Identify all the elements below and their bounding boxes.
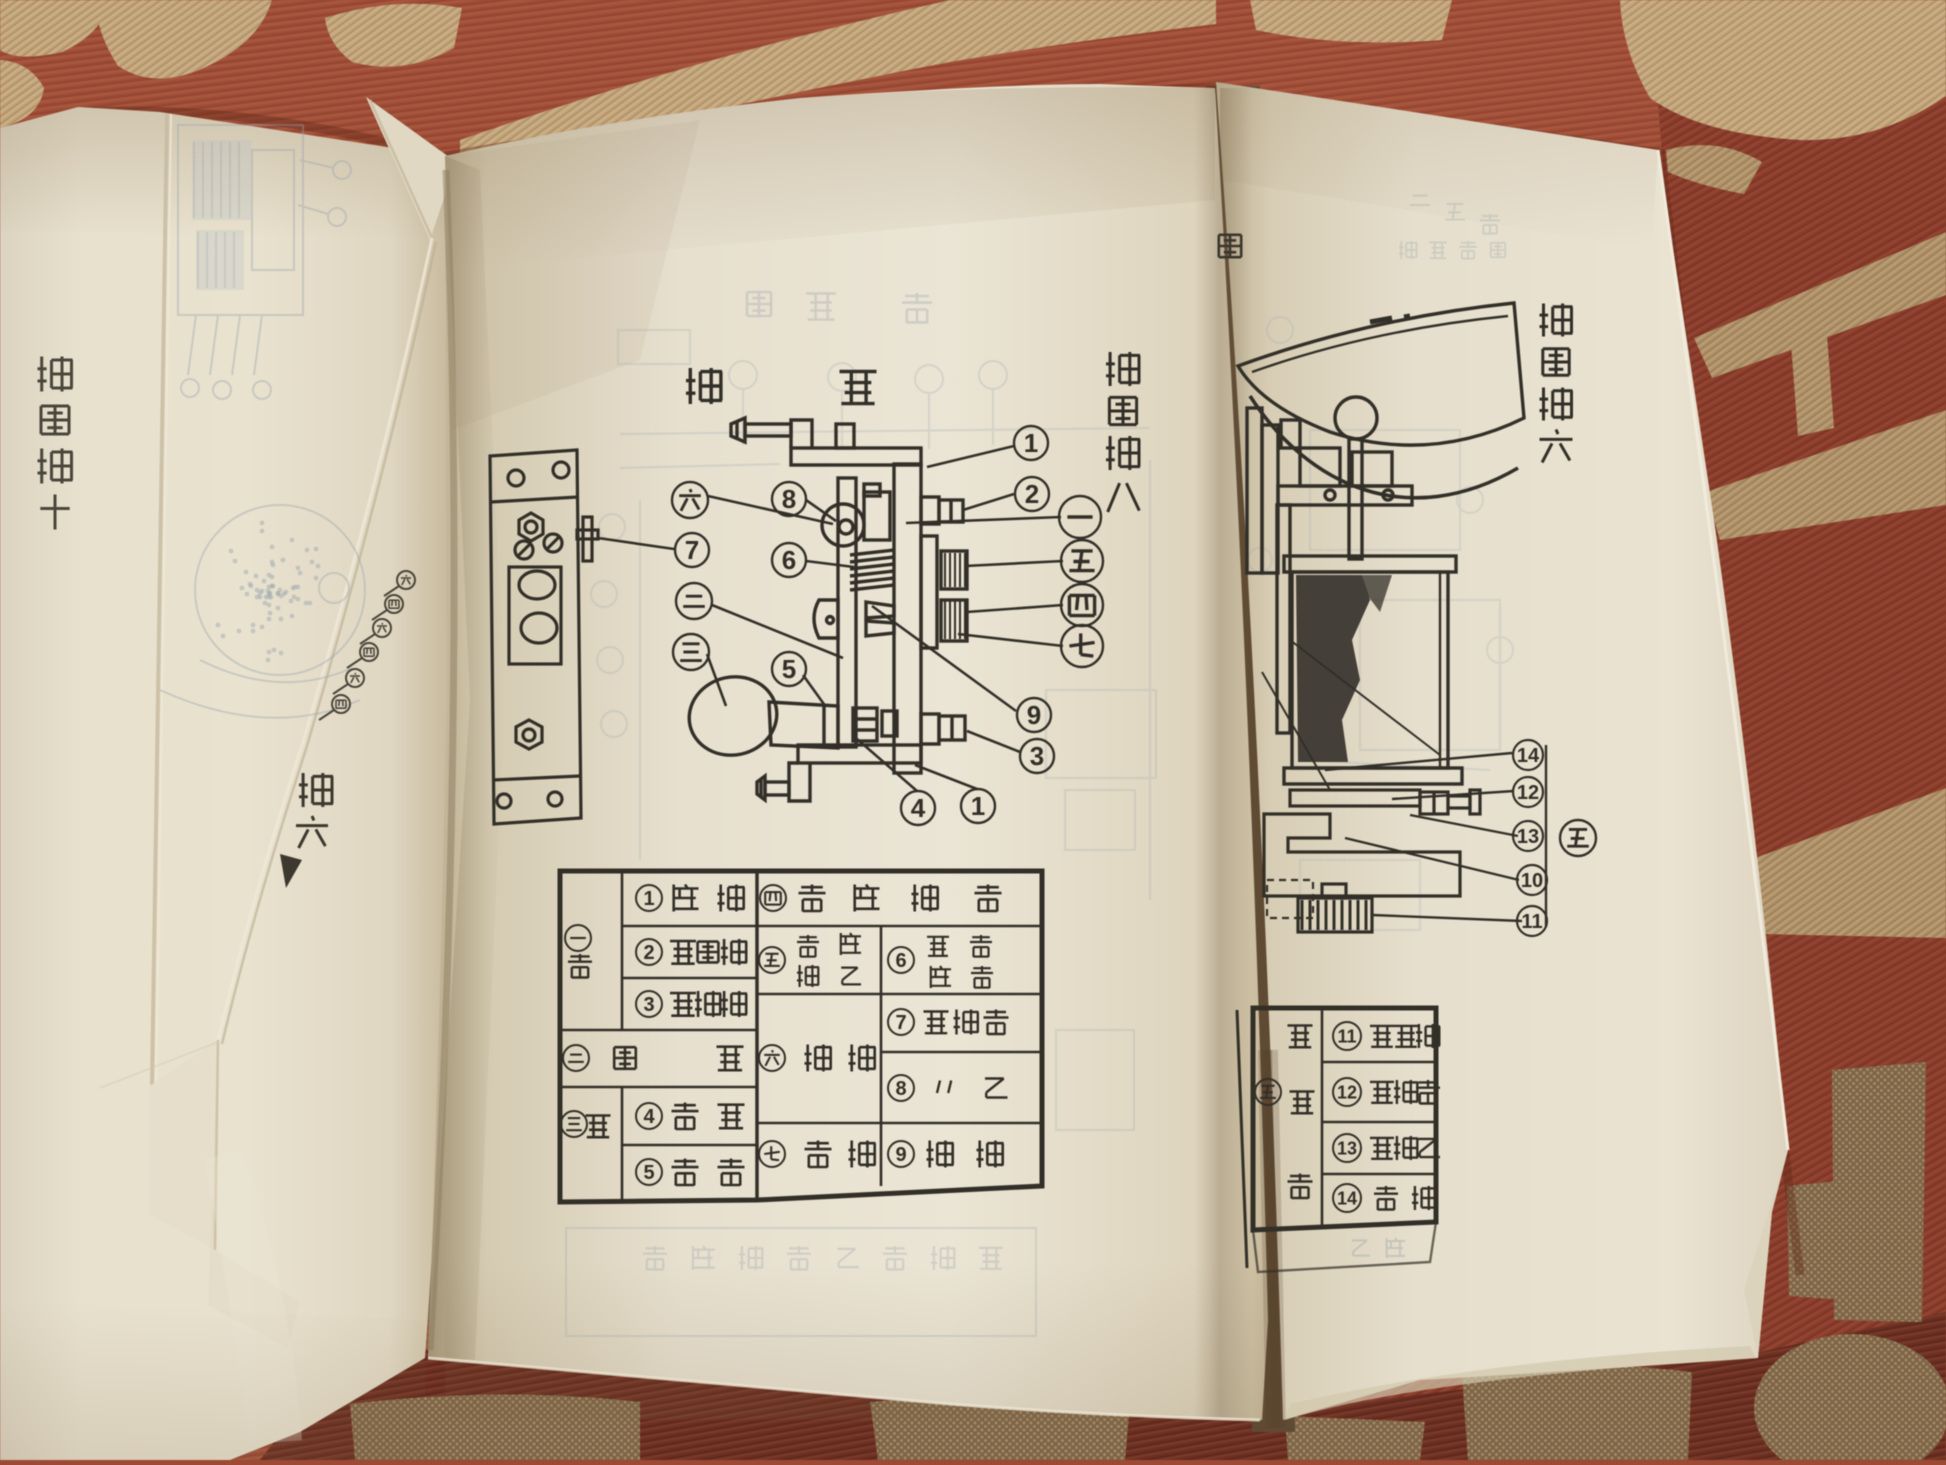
svg-text:2: 2	[643, 942, 654, 964]
svg-text:8: 8	[895, 1078, 906, 1100]
svg-text:10: 10	[1521, 870, 1543, 892]
svg-text:1: 1	[643, 888, 654, 910]
svg-text:8: 8	[782, 484, 796, 514]
svg-text:9: 9	[895, 1144, 906, 1166]
svg-text:6: 6	[782, 545, 796, 575]
svg-text:1: 1	[1024, 428, 1038, 458]
svg-text:9: 9	[1027, 700, 1041, 730]
svg-text:13: 13	[1337, 1138, 1357, 1158]
svg-text:11: 11	[1521, 911, 1542, 933]
svg-text:6: 6	[895, 950, 906, 972]
svg-text:7: 7	[895, 1012, 906, 1034]
svg-text:14: 14	[1517, 745, 1540, 767]
svg-text:2: 2	[1025, 479, 1039, 509]
svg-text:11: 11	[1337, 1026, 1356, 1046]
svg-text:12: 12	[1337, 1082, 1357, 1102]
svg-text:4: 4	[643, 1106, 655, 1128]
svg-text:4: 4	[911, 793, 926, 823]
svg-text:5: 5	[643, 1162, 654, 1184]
svg-text:1: 1	[971, 791, 985, 821]
svg-text:5: 5	[782, 654, 796, 684]
svg-text:14: 14	[1337, 1188, 1357, 1208]
svg-text:3: 3	[643, 994, 654, 1016]
svg-text:13: 13	[1517, 826, 1539, 848]
svg-text:7: 7	[685, 535, 699, 565]
svg-text:12: 12	[1517, 782, 1539, 804]
svg-text:3: 3	[1030, 741, 1044, 771]
